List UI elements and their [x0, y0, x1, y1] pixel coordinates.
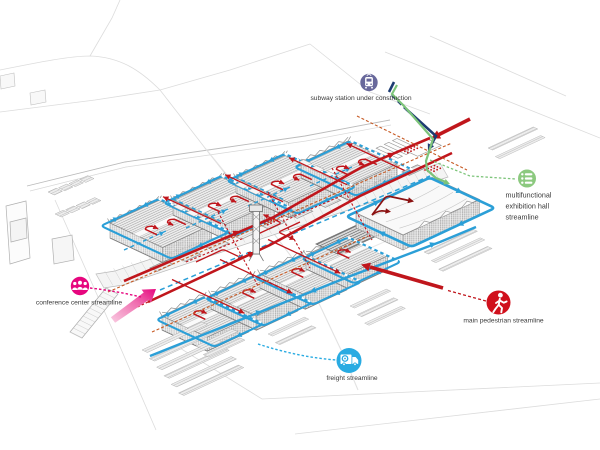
svg-text:subway station under construct: subway station under construction [310, 95, 411, 102]
svg-text:streamline: streamline [506, 213, 539, 222]
svg-text:conference center streamline: conference center streamline [36, 300, 123, 307]
svg-text:exhibition hall: exhibition hall [506, 202, 550, 211]
svg-text:freight streamline: freight streamline [326, 375, 378, 382]
svg-text:main pedestrian streamline: main pedestrian streamline [463, 318, 544, 325]
svg-text:multifunctional: multifunctional [506, 191, 552, 200]
